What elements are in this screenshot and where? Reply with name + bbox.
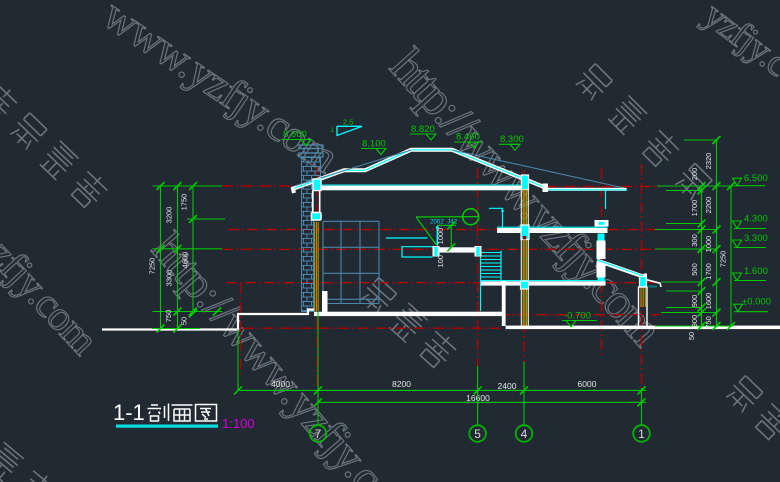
svg-text:50: 50 xyxy=(687,332,696,340)
svg-text:8.100: 8.100 xyxy=(362,139,386,150)
svg-text:4.300: 4.300 xyxy=(744,214,768,225)
svg-text:300: 300 xyxy=(690,234,699,247)
svg-text:1700: 1700 xyxy=(690,200,699,217)
svg-text:-0.700: -0.700 xyxy=(564,311,591,322)
svg-text:2320: 2320 xyxy=(704,153,713,170)
svg-text:4000: 4000 xyxy=(271,379,290,389)
svg-text:5: 5 xyxy=(474,427,481,441)
svg-text:3200: 3200 xyxy=(165,207,174,224)
svg-text:1000: 1000 xyxy=(436,228,445,245)
svg-text:8.460: 8.460 xyxy=(456,132,480,143)
svg-text:2400: 2400 xyxy=(498,381,517,391)
svg-text:2200: 2200 xyxy=(704,197,713,214)
svg-text:1:100: 1:100 xyxy=(222,416,255,431)
svg-text:750: 750 xyxy=(164,310,173,323)
svg-text:4600: 4600 xyxy=(181,252,190,269)
svg-text:50: 50 xyxy=(180,317,189,325)
svg-text:8.600: 8.600 xyxy=(283,129,307,140)
svg-text:1750: 1750 xyxy=(180,194,189,211)
svg-text:1.600: 1.600 xyxy=(744,266,768,277)
svg-text:1600: 1600 xyxy=(704,293,713,310)
svg-text:8.820: 8.820 xyxy=(411,124,435,135)
svg-text:6000: 6000 xyxy=(578,379,597,389)
svg-text:900: 900 xyxy=(690,315,699,328)
svg-text:7: 7 xyxy=(315,427,322,441)
svg-text:1-1: 1-1 xyxy=(113,400,145,425)
svg-text:3.300: 3.300 xyxy=(744,233,768,244)
svg-text:8200: 8200 xyxy=(392,379,411,389)
svg-text:500: 500 xyxy=(690,263,699,276)
svg-text:200: 200 xyxy=(690,168,699,181)
svg-text:7250: 7250 xyxy=(148,258,157,275)
svg-text:1000: 1000 xyxy=(704,236,713,253)
svg-text:8.300: 8.300 xyxy=(500,134,524,145)
svg-text:7250: 7250 xyxy=(719,251,728,268)
svg-text:750: 750 xyxy=(704,316,713,329)
svg-text:900: 900 xyxy=(690,295,699,308)
svg-text:100: 100 xyxy=(436,255,445,268)
svg-text:6.500: 6.500 xyxy=(744,173,768,184)
svg-text:3300: 3300 xyxy=(165,270,174,287)
svg-text:4: 4 xyxy=(521,427,528,441)
svg-text:2.5: 2.5 xyxy=(343,118,353,127)
svg-text:1: 1 xyxy=(638,427,645,441)
svg-text:±0.000: ±0.000 xyxy=(742,297,771,308)
svg-text:1700: 1700 xyxy=(704,263,713,280)
